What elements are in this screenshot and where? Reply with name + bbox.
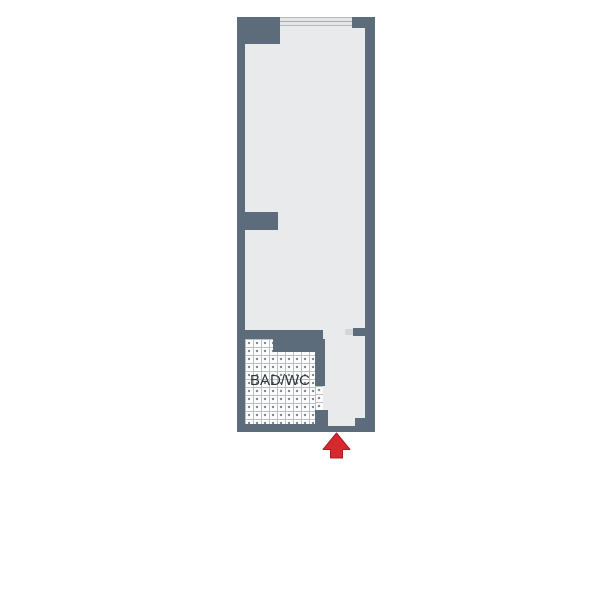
wall-stub-corridor-right bbox=[353, 328, 365, 336]
entrance-threshold bbox=[328, 424, 355, 426]
bathroom-label: BAD/WC bbox=[245, 372, 315, 389]
wall-right bbox=[365, 17, 375, 432]
entrance-stub-right bbox=[355, 418, 365, 426]
top-window bbox=[280, 17, 352, 26]
bathroom-wall-right bbox=[315, 339, 325, 386]
bathroom-corner-block bbox=[315, 410, 328, 426]
bathroom-door-opening bbox=[315, 386, 323, 410]
wall-block-top-left bbox=[237, 17, 280, 44]
wall-stub-left-mid bbox=[237, 212, 278, 230]
entrance-arrow-icon bbox=[322, 432, 351, 459]
wall-corner-top-right bbox=[352, 17, 375, 28]
floor-plan: BAD/WC bbox=[0, 0, 600, 600]
bathroom-duct-block bbox=[273, 339, 315, 352]
bathroom-wall-top bbox=[237, 330, 323, 339]
